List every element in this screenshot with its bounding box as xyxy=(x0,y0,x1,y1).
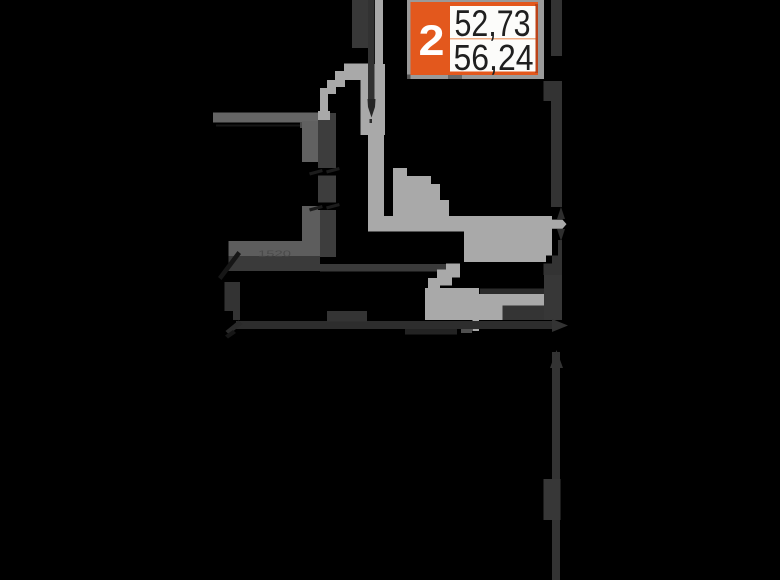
svg-text:1520: 1520 xyxy=(258,250,292,259)
svg-text:2: 2 xyxy=(419,17,445,65)
svg-text:56,24: 56,24 xyxy=(454,37,534,78)
